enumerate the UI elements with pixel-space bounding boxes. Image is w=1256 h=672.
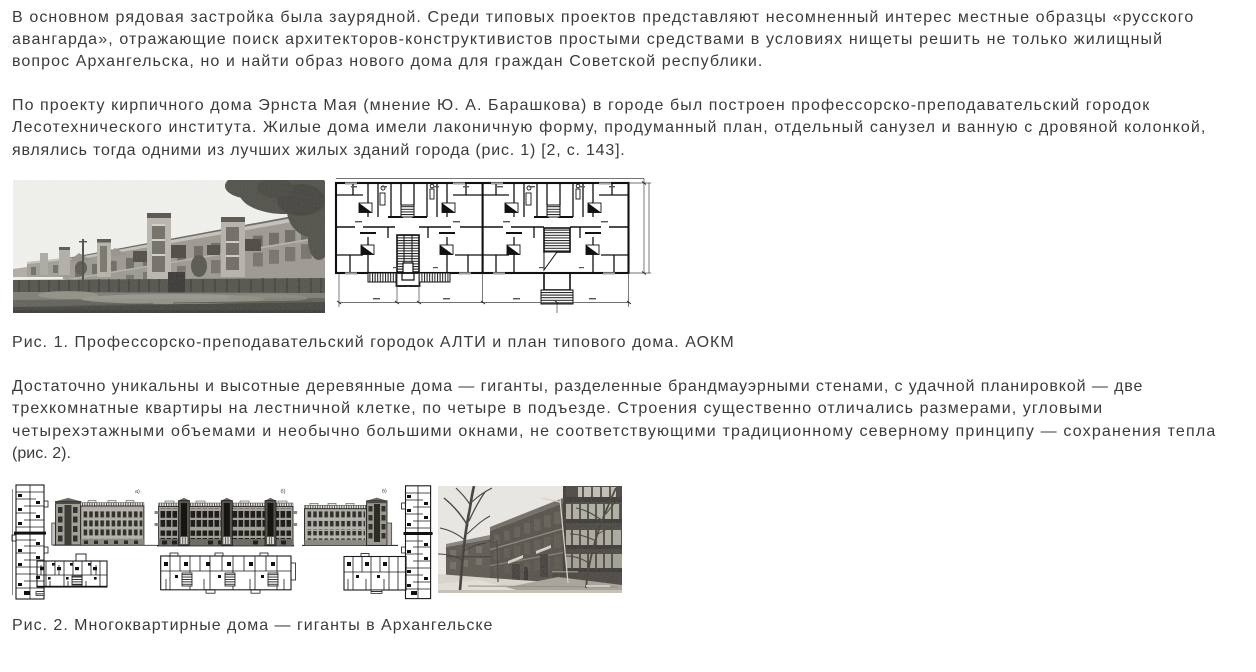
svg-text:а): а) [135,489,140,495]
svg-text:б): б) [281,489,286,495]
svg-text:в): в) [382,489,387,495]
